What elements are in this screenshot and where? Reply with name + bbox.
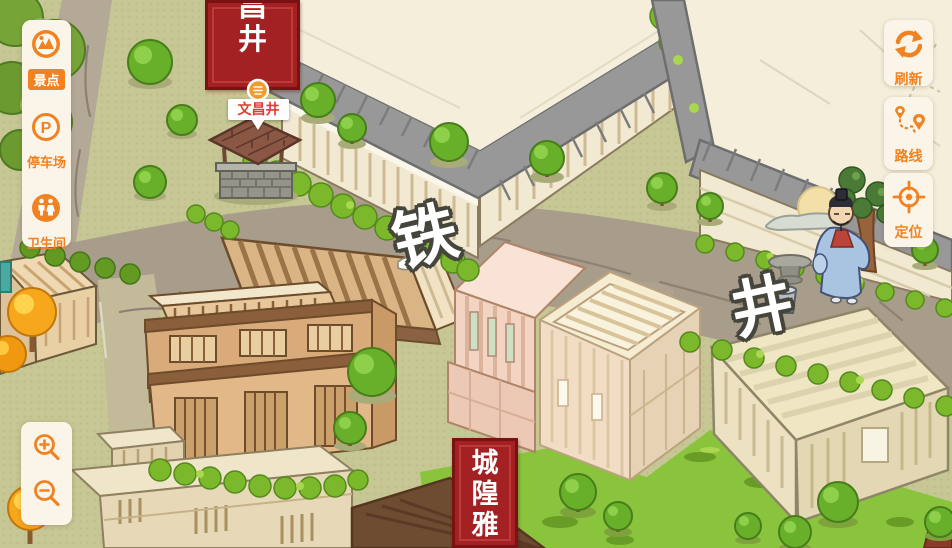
top-banner-text: 文昌井 [237,0,269,56]
locate-button[interactable]: 定位 [884,173,933,247]
svg-text:P: P [41,120,52,137]
sidebar-item-parking[interactable]: P 停车场 [27,112,66,171]
sidebar-item-label: 停车场 [27,152,66,171]
poi-label[interactable]: 文昌井 [228,99,289,120]
zoom-panel [21,422,72,525]
parking-icon: P [31,112,61,147]
poi-label-arrow [251,119,265,130]
scenic-spot-icon [31,29,61,64]
sidebar-item-restroom[interactable]: 卫生间 [27,193,66,252]
building-pink-2 [540,272,700,480]
zoom-in-icon[interactable] [31,432,63,469]
zoom-out-icon[interactable] [31,478,63,515]
bottom-banner-flag: 城隍雅 [452,438,518,548]
locate-icon [892,180,926,219]
refresh-button[interactable]: 刷新 [884,20,933,86]
route-icon [891,104,927,143]
sidebar-item-label: 卫生间 [27,233,66,252]
sidebar-panel: 景点 P 停车场 卫生间 [22,20,71,247]
restroom-icon [31,193,61,228]
locate-label: 定位 [895,222,923,242]
route-button[interactable]: 路线 [884,97,933,170]
bottom-banner-text: 城隍雅 [469,448,501,541]
refresh-icon [892,27,926,66]
route-label: 路线 [895,146,923,166]
refresh-label: 刷新 [895,69,923,89]
sidebar-item-scenic-spots[interactable]: 景点 [28,29,64,90]
map-canvas[interactable]: 铁 井 文昌井 城隍雅 文昌井 景点 [0,0,952,548]
sidebar-item-label: 景点 [28,69,64,90]
top-banner-flag: 文昌井 [205,0,300,90]
